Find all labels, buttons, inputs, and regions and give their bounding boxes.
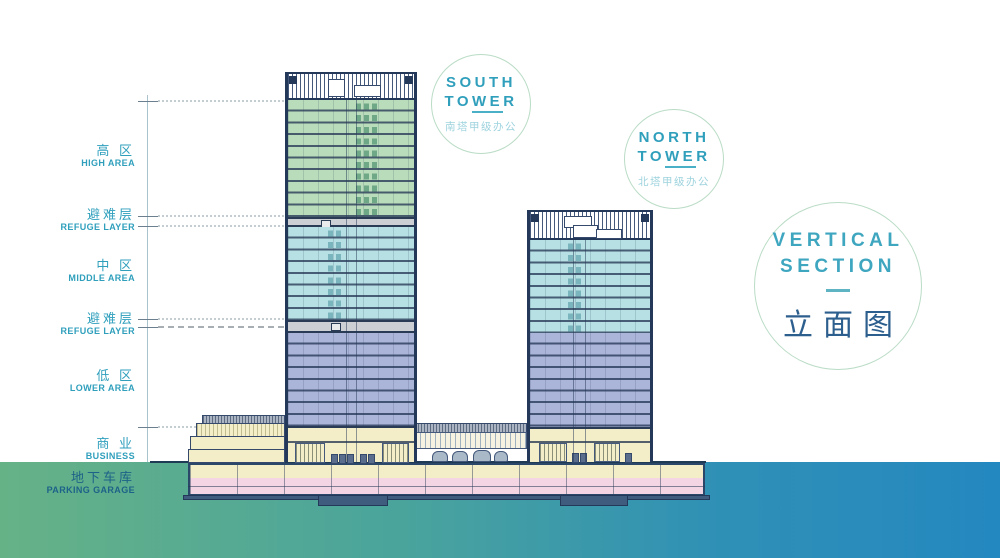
north-tower-badge-subtitle: 北塔甲级办公	[638, 174, 710, 189]
leader-refuge2-bottom	[158, 326, 284, 328]
storefront-louvers	[382, 443, 409, 463]
crown-corner	[405, 76, 413, 84]
link-glass-facade	[414, 432, 527, 449]
south-tower-badge: SOUTH TOWER 南塔甲级办公	[431, 54, 531, 154]
tick-podium-top	[138, 427, 158, 428]
underlined-we: WE	[472, 93, 503, 113]
north-tower-badge: NORTH TOWER 北塔甲级办公	[624, 109, 724, 209]
podium-ground-floor	[188, 449, 285, 463]
label-business-zh: 商 业	[28, 437, 135, 450]
underlined-we: WE	[665, 148, 696, 168]
storefront-louvers	[295, 443, 325, 463]
label-refuge2-en: REFUGE LAYER	[28, 327, 135, 336]
label-middle-area-zh: 中 区	[28, 259, 135, 272]
leader-refuge1-top	[158, 215, 284, 217]
elevator-pit-south	[318, 495, 388, 506]
podium-middle-floor	[190, 436, 285, 450]
title-line2: SECTION	[780, 254, 896, 280]
south-tower	[285, 72, 417, 462]
label-parking-garage: 地下车库 PARKING GARAGE	[28, 471, 135, 495]
penthouse-box	[573, 225, 598, 238]
label-refuge1-zh: 避难层	[28, 208, 135, 221]
north-tower-base	[530, 427, 650, 462]
south-middle-zone	[288, 227, 414, 320]
core-shaft-line	[356, 100, 357, 462]
podium-upper-floor	[196, 423, 285, 437]
south-tower-badge-subtitle: 南塔甲级办公	[445, 119, 517, 134]
bush	[494, 451, 508, 462]
label-refuge1-en: REFUGE LAYER	[28, 223, 135, 232]
title-badge: VERTICAL SECTION 立面图	[754, 202, 922, 370]
label-lower-area-en: LOWER AREA	[28, 384, 135, 393]
core-shaft-line	[585, 240, 586, 462]
label-business-en: BUSINESS	[28, 452, 135, 461]
crown-corner	[289, 76, 297, 84]
crown-corner	[641, 214, 649, 222]
tick-refuge2-bottom	[138, 327, 158, 328]
north-tower-badge-line1: NORTH	[639, 129, 710, 148]
label-lower-area: 低 区 LOWER AREA	[28, 369, 135, 393]
leader-high-top	[158, 100, 284, 102]
title-line1: VERTICAL	[773, 228, 904, 254]
label-refuge2-zh: 避难层	[28, 312, 135, 325]
penthouse-box	[596, 229, 622, 239]
south-high-zone	[288, 100, 414, 217]
title-subtitle-zh: 立面图	[783, 300, 903, 344]
tick-refuge1-bottom	[138, 226, 158, 227]
label-parking-zh: 地下车库	[28, 471, 135, 484]
tick-refuge2-top	[138, 319, 158, 320]
bush	[473, 450, 491, 462]
leader-refuge1-bottom	[158, 225, 284, 227]
north-tower-crown	[530, 210, 650, 240]
label-high-area-zh: 高 区	[28, 144, 135, 157]
bush	[432, 451, 448, 462]
elevator-pit-north	[560, 495, 628, 506]
bush	[452, 451, 468, 462]
leader-refuge2-top	[158, 318, 284, 320]
label-high-area-en: HIGH AREA	[28, 159, 135, 168]
south-tower-badge-line1: SOUTH	[446, 74, 516, 93]
storefront-louvers	[594, 443, 620, 462]
title-dash	[826, 289, 850, 292]
vertical-section-diagram: 高 区 HIGH AREA 避难层 REFUGE LAYER 中 区 MIDDL…	[0, 0, 1000, 558]
penthouse-box	[328, 79, 345, 97]
core-shaft-line	[346, 100, 347, 462]
foundation-mat	[183, 495, 710, 500]
south-lower-zone	[288, 333, 414, 426]
north-tower	[527, 210, 653, 462]
north-lower-zone	[530, 333, 650, 427]
north-middle-zone	[530, 240, 650, 333]
core-shaft-line	[573, 240, 574, 462]
label-refuge-layer-1: 避难层 REFUGE LAYER	[28, 208, 135, 232]
south-tower-crown	[288, 72, 414, 100]
measure-line	[147, 95, 148, 491]
label-middle-area-en: MIDDLE AREA	[28, 274, 135, 283]
crown-corner	[531, 214, 539, 222]
basement-parking-levels	[188, 463, 705, 496]
south-refuge-layer-1	[288, 217, 414, 227]
tick-refuge1-top	[138, 216, 158, 217]
label-lower-area-zh: 低 区	[28, 369, 135, 382]
storefront-louvers	[539, 443, 567, 462]
south-tower-badge-line2: TOWER	[444, 93, 517, 112]
south-tower-base	[288, 426, 414, 462]
tick-high-top	[138, 101, 158, 102]
label-refuge-layer-2: 避难层 REFUGE LAYER	[28, 312, 135, 336]
label-business: 商 业 BUSINESS	[28, 437, 135, 461]
label-middle-area: 中 区 MIDDLE AREA	[28, 259, 135, 283]
label-high-area: 高 区 HIGH AREA	[28, 144, 135, 168]
basement-floor-divider	[188, 486, 705, 487]
penthouse-box	[354, 85, 381, 97]
label-parking-en: PARKING GARAGE	[28, 486, 135, 495]
north-tower-badge-line2: TOWER	[637, 148, 710, 167]
south-refuge-layer-2	[288, 320, 414, 333]
